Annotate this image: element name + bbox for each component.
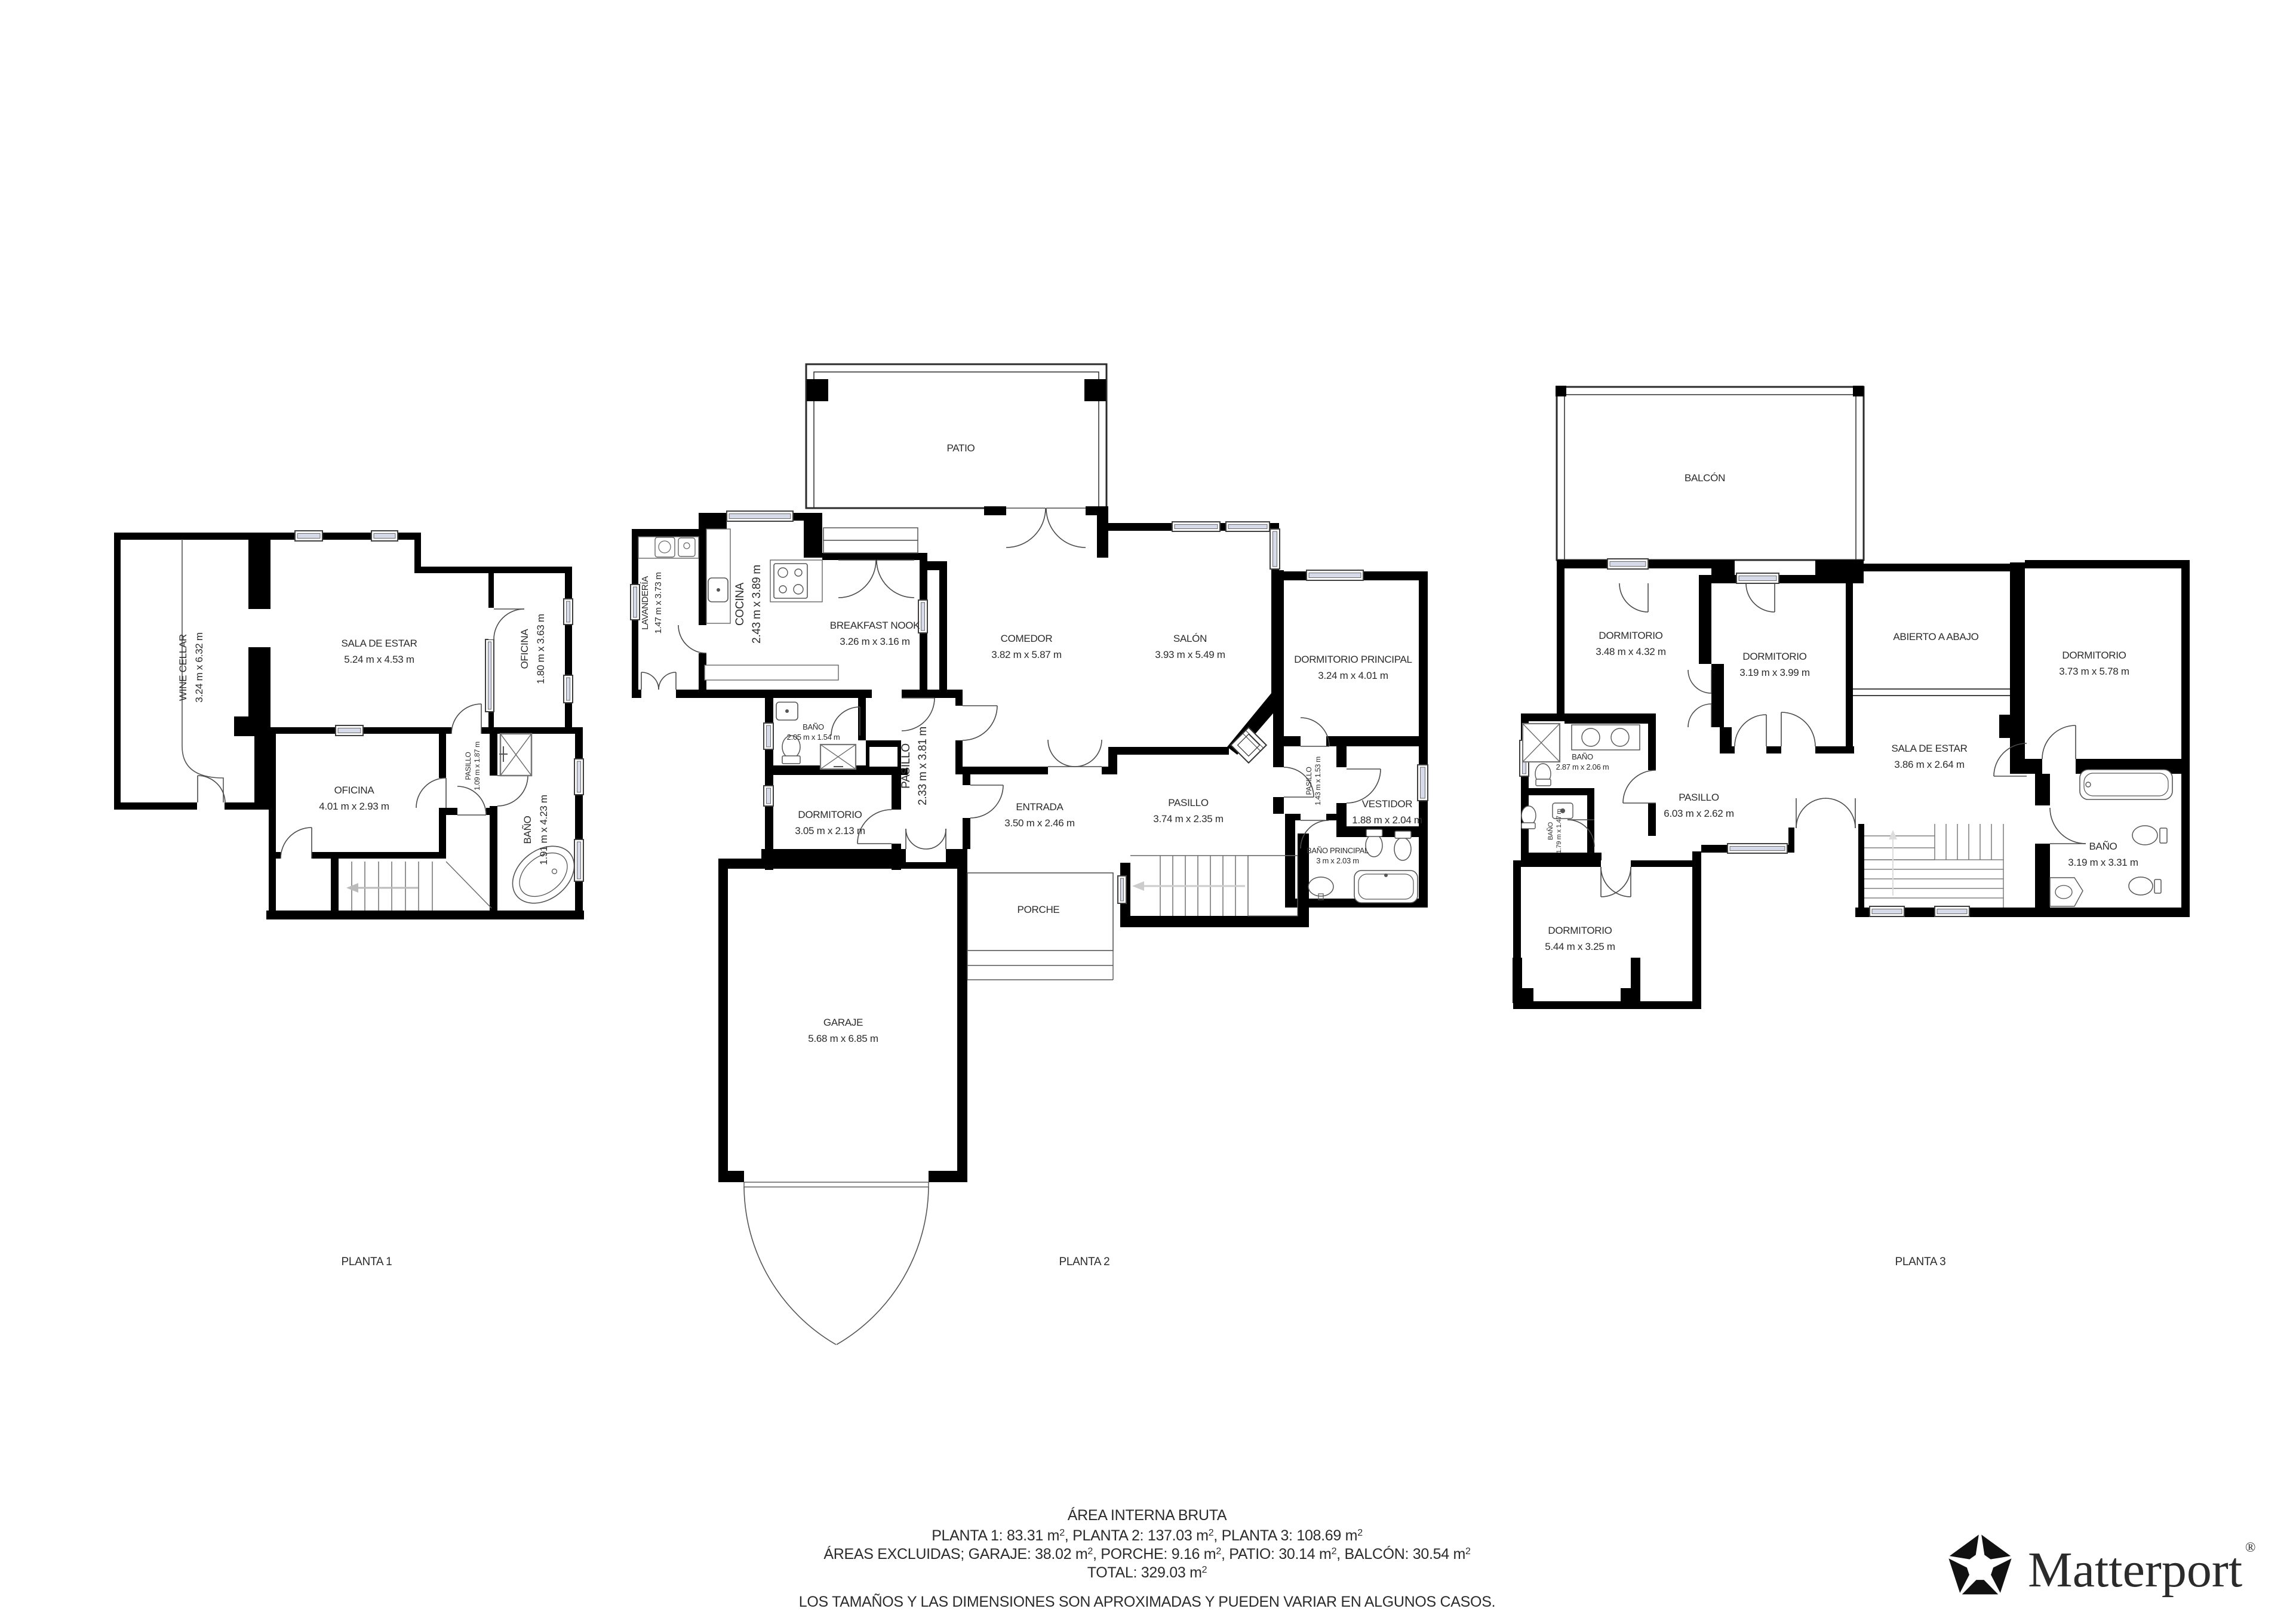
- svg-text:GARAJE: GARAJE: [823, 1017, 863, 1028]
- svg-text:PORCHE: PORCHE: [1018, 904, 1060, 915]
- svg-text:1.88 m x 2.04 m: 1.88 m x 2.04 m: [1352, 814, 1422, 826]
- svg-text:BAÑO: BAÑO: [2089, 841, 2117, 852]
- svg-text:®: ®: [2245, 1540, 2255, 1555]
- svg-text:VESTIDOR: VESTIDOR: [1362, 798, 1413, 810]
- svg-text:3.26 m x 3.16 m: 3.26 m x 3.16 m: [840, 636, 910, 647]
- svg-text:WINE CELLAR: WINE CELLAR: [177, 634, 189, 701]
- svg-text:BAÑO: BAÑO: [803, 722, 824, 731]
- svg-text:PASILLO: PASILLO: [1305, 767, 1313, 795]
- svg-text:DORMITORIO: DORMITORIO: [1742, 651, 1806, 662]
- svg-text:ABIERTO A ABAJO: ABIERTO A ABAJO: [1893, 631, 1978, 642]
- svg-text:5.24 m x 4.53 m: 5.24 m x 4.53 m: [344, 654, 414, 665]
- svg-text:2.87 m x 2.06 m: 2.87 m x 2.06 m: [1556, 762, 1609, 771]
- svg-text:DORMITORIO: DORMITORIO: [1548, 925, 1612, 936]
- svg-text:3.73 m x 5.78 m: 3.73 m x 5.78 m: [2059, 666, 2129, 677]
- svg-text:BAÑO: BAÑO: [522, 816, 533, 844]
- svg-text:3.82 m x 5.87 m: 3.82 m x 5.87 m: [991, 649, 1062, 660]
- svg-text:ÁREAS EXCLUIDAS; GARAJE: 38.02: ÁREAS EXCLUIDAS; GARAJE: 38.02 m2, PORCH…: [823, 1545, 1471, 1563]
- svg-text:ÁREA INTERNA BRUTA: ÁREA INTERNA BRUTA: [1068, 1506, 1227, 1524]
- svg-text:BAÑO: BAÑO: [1547, 822, 1554, 840]
- svg-text:5.68 m x 6.85 m: 5.68 m x 6.85 m: [808, 1033, 878, 1044]
- svg-text:2.43 m x 3.89 m: 2.43 m x 3.89 m: [751, 565, 763, 644]
- svg-text:4.01 m x 2.93 m: 4.01 m x 2.93 m: [319, 801, 389, 812]
- svg-text:BAÑO: BAÑO: [1572, 752, 1593, 761]
- svg-text:BREAKFAST NOOK: BREAKFAST NOOK: [830, 620, 920, 631]
- svg-text:3.50 m x 2.46 m: 3.50 m x 2.46 m: [1004, 817, 1075, 829]
- svg-text:PLANTA 3: PLANTA 3: [1895, 1256, 1946, 1268]
- svg-text:PLANTA 2: PLANTA 2: [1059, 1256, 1110, 1268]
- svg-text:DORMITORIO PRINCIPAL: DORMITORIO PRINCIPAL: [1294, 654, 1412, 665]
- svg-text:PATIO: PATIO: [947, 442, 975, 454]
- svg-text:COMEDOR: COMEDOR: [1001, 633, 1053, 644]
- svg-text:3.19 m x 3.99 m: 3.19 m x 3.99 m: [1739, 667, 1810, 678]
- svg-text:3.19 m x 3.31 m: 3.19 m x 3.31 m: [2068, 857, 2138, 868]
- svg-text:Matterport: Matterport: [2028, 1542, 2242, 1598]
- svg-text:PASILLO: PASILLO: [900, 743, 912, 789]
- svg-text:BAÑO PRINCIPAL: BAÑO PRINCIPAL: [1307, 846, 1369, 855]
- svg-text:3.05 m x 2.13 m: 3.05 m x 2.13 m: [795, 825, 865, 836]
- svg-text:SALÓN: SALÓN: [1173, 633, 1207, 644]
- svg-text:OFICINA: OFICINA: [334, 785, 375, 796]
- svg-text:3.24 m x 6.32 m: 3.24 m x 6.32 m: [193, 632, 205, 703]
- svg-text:DORMITORIO: DORMITORIO: [1599, 630, 1662, 641]
- svg-text:3.93 m x 5.49 m: 3.93 m x 5.49 m: [1155, 649, 1225, 660]
- svg-text:SALA DE ESTAR: SALA DE ESTAR: [1891, 743, 1967, 754]
- svg-text:1.79 m x 1.47 m: 1.79 m x 1.47 m: [1556, 809, 1563, 854]
- svg-text:2.33 m x 3.81 m: 2.33 m x 3.81 m: [917, 727, 929, 805]
- svg-text:1.91 m x 4.23 m: 1.91 m x 4.23 m: [538, 795, 549, 865]
- svg-text:1.43 m x 1.53 m: 1.43 m x 1.53 m: [1314, 756, 1322, 805]
- svg-text:LOS TAMAÑOS Y LAS DIMENSIONES: LOS TAMAÑOS Y LAS DIMENSIONES SON APROXI…: [799, 1593, 1495, 1610]
- svg-text:PLANTA 1: 83.31 m2, PLANTA 2:: PLANTA 1: 83.31 m2, PLANTA 2: 137.03 m2,…: [932, 1527, 1363, 1544]
- svg-text:TOTAL: 329.03 m2: TOTAL: 329.03 m2: [1087, 1564, 1207, 1581]
- svg-text:COCINA: COCINA: [734, 582, 746, 626]
- svg-text:LAVANDERÍA: LAVANDERÍA: [640, 576, 650, 630]
- svg-text:SALA DE ESTAR: SALA DE ESTAR: [341, 638, 417, 649]
- svg-text:6.03 m x 2.62 m: 6.03 m x 2.62 m: [1664, 808, 1734, 819]
- svg-text:3.24 m x 4.01 m: 3.24 m x 4.01 m: [1318, 670, 1388, 681]
- svg-text:PLANTA 1: PLANTA 1: [342, 1256, 392, 1268]
- svg-text:OFICINA: OFICINA: [519, 629, 530, 669]
- svg-text:3 m x 2.03 m: 3 m x 2.03 m: [1316, 856, 1359, 865]
- svg-text:3.74 m x 2.35 m: 3.74 m x 2.35 m: [1153, 813, 1224, 825]
- svg-text:1.09 m x 1.87 m: 1.09 m x 1.87 m: [473, 742, 481, 791]
- svg-text:1.80 m x 3.63 m: 1.80 m x 3.63 m: [535, 614, 546, 684]
- svg-text:DORMITORIO: DORMITORIO: [798, 809, 862, 820]
- svg-text:3.86 m x 2.64 m: 3.86 m x 2.64 m: [1894, 759, 1965, 770]
- svg-text:PASILLO: PASILLO: [464, 752, 472, 780]
- svg-text:PASILLO: PASILLO: [1168, 797, 1209, 808]
- svg-text:BALCÓN: BALCÓN: [1685, 472, 1725, 484]
- svg-text:DORMITORIO: DORMITORIO: [2062, 650, 2126, 661]
- svg-text:5.44 m x 3.25 m: 5.44 m x 3.25 m: [1545, 941, 1615, 952]
- svg-text:2.05 m x 1.54 m: 2.05 m x 1.54 m: [787, 733, 840, 742]
- svg-text:PASILLO: PASILLO: [1679, 792, 1719, 803]
- svg-text:ENTRADA: ENTRADA: [1016, 801, 1063, 813]
- svg-text:1.47 m x 3.73 m: 1.47 m x 3.73 m: [653, 572, 663, 633]
- svg-text:3.48 m x 4.32 m: 3.48 m x 4.32 m: [1596, 646, 1666, 657]
